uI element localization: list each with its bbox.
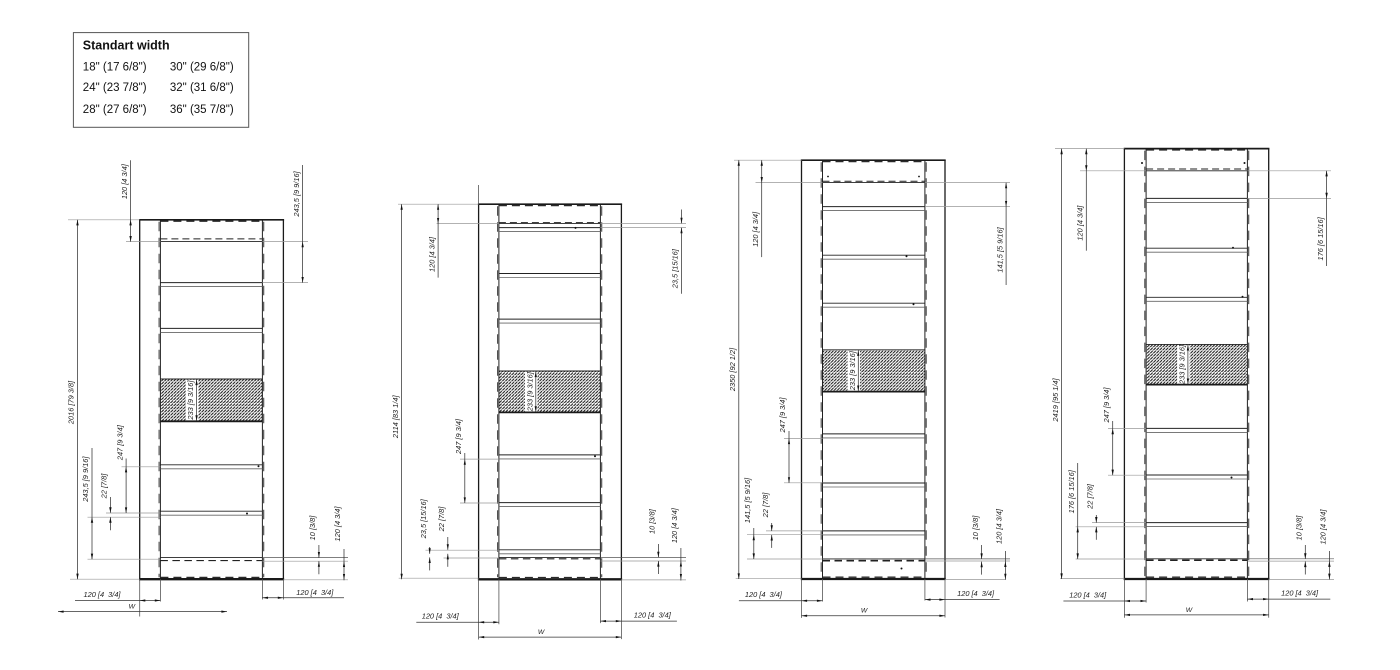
svg-text:10 [3/8]: 10 [3/8]	[308, 515, 317, 541]
svg-text:247 [9 3/4]: 247 [9 3/4]	[454, 418, 463, 455]
svg-text:120 [4 3/4]: 120 [4 3/4]	[634, 610, 672, 619]
svg-text:10 [3/8]: 10 [3/8]	[971, 515, 980, 541]
svg-text:233 [9 3/16]: 233 [9 3/16]	[186, 380, 195, 421]
svg-text:W: W	[129, 604, 136, 611]
svg-text:243,5 [9 9/16]: 243,5 [9 9/16]	[292, 170, 301, 217]
svg-text:120 [4 3/4]: 120 [4 3/4]	[427, 236, 436, 272]
svg-text:120 [4 3/4]: 120 [4 3/4]	[957, 589, 995, 598]
svg-text:120 [4 3/4]: 120 [4 3/4]	[670, 507, 679, 543]
svg-text:10 [3/8]: 10 [3/8]	[648, 508, 657, 534]
svg-text:Standart width: Standart width	[83, 39, 170, 53]
svg-text:30" (29 6/8"): 30" (29 6/8")	[170, 62, 234, 74]
svg-text:W: W	[538, 629, 545, 636]
svg-text:120 [4 3/4]: 120 [4 3/4]	[120, 163, 129, 199]
svg-text:120 [4 3/4]: 120 [4 3/4]	[995, 508, 1004, 544]
svg-text:2016 [79 3/8]: 2016 [79 3/8]	[67, 380, 76, 425]
svg-text:36" (35 7/8"): 36" (35 7/8")	[170, 104, 234, 116]
svg-text:243,5 [9 9/16]: 243,5 [9 9/16]	[81, 456, 90, 503]
svg-text:233 [9 3/16]: 233 [9 3/16]	[848, 350, 857, 391]
svg-text:2114 [83 1/4]: 2114 [83 1/4]	[391, 395, 400, 440]
svg-text:141,5 [5 9/16]: 141,5 [5 9/16]	[995, 226, 1004, 272]
svg-text:22 [7/8]: 22 [7/8]	[761, 492, 770, 519]
svg-text:176 [6 15/16]: 176 [6 15/16]	[1316, 216, 1325, 260]
svg-text:22 [7/8]: 22 [7/8]	[1086, 483, 1095, 510]
svg-text:10 [3/8]: 10 [3/8]	[1295, 515, 1304, 541]
svg-text:176 [6 15/16]: 176 [6 15/16]	[1067, 469, 1076, 513]
svg-text:120 [4 3/4]: 120 [4 3/4]	[745, 590, 783, 599]
svg-text:32" (31 6/8"): 32" (31 6/8")	[170, 82, 234, 94]
svg-text:23,5 [15/16]: 23,5 [15/16]	[419, 498, 428, 539]
svg-text:120 [4 3/4]: 120 [4 3/4]	[1069, 590, 1107, 599]
svg-text:23,5 [15/16]: 23,5 [15/16]	[671, 248, 680, 289]
svg-text:W: W	[861, 608, 868, 615]
svg-text:28" (27 6/8"): 28" (27 6/8")	[83, 104, 147, 116]
svg-text:120 [4 3/4]: 120 [4 3/4]	[1076, 205, 1085, 241]
svg-text:247 [9 3/4]: 247 [9 3/4]	[1102, 387, 1111, 424]
svg-text:22 [7/8]: 22 [7/8]	[437, 506, 446, 533]
svg-text:120 [4 3/4]: 120 [4 3/4]	[1319, 509, 1328, 545]
svg-text:120 [4 3/4]: 120 [4 3/4]	[422, 612, 460, 621]
svg-text:W: W	[1186, 607, 1193, 614]
svg-text:120 [4 3/4]: 120 [4 3/4]	[751, 211, 760, 247]
svg-text:22 [7/8]: 22 [7/8]	[100, 473, 109, 500]
svg-text:2419 [95 1/4]: 2419 [95 1/4]	[1051, 377, 1060, 422]
svg-text:247 [9 3/4]: 247 [9 3/4]	[115, 424, 124, 461]
svg-text:18" (17 6/8"): 18" (17 6/8")	[83, 62, 147, 74]
svg-text:120 [4 3/4]: 120 [4 3/4]	[296, 588, 334, 597]
svg-text:247 [9 3/4]: 247 [9 3/4]	[778, 397, 787, 434]
svg-text:120 [4 3/4]: 120 [4 3/4]	[84, 590, 122, 599]
svg-text:120 [4 3/4]: 120 [4 3/4]	[333, 506, 342, 542]
svg-text:233 [9 3/16]: 233 [9 3/16]	[1178, 344, 1187, 385]
svg-text:120 [4 3/4]: 120 [4 3/4]	[1281, 588, 1319, 597]
svg-text:24" (23 7/8"): 24" (23 7/8")	[83, 82, 147, 94]
svg-text:233 [9 3/16]: 233 [9 3/16]	[525, 371, 534, 412]
svg-text:2350 [92 1/2]: 2350 [92 1/2]	[728, 347, 737, 392]
svg-text:141,5 [5 9/16]: 141,5 [5 9/16]	[743, 477, 752, 523]
